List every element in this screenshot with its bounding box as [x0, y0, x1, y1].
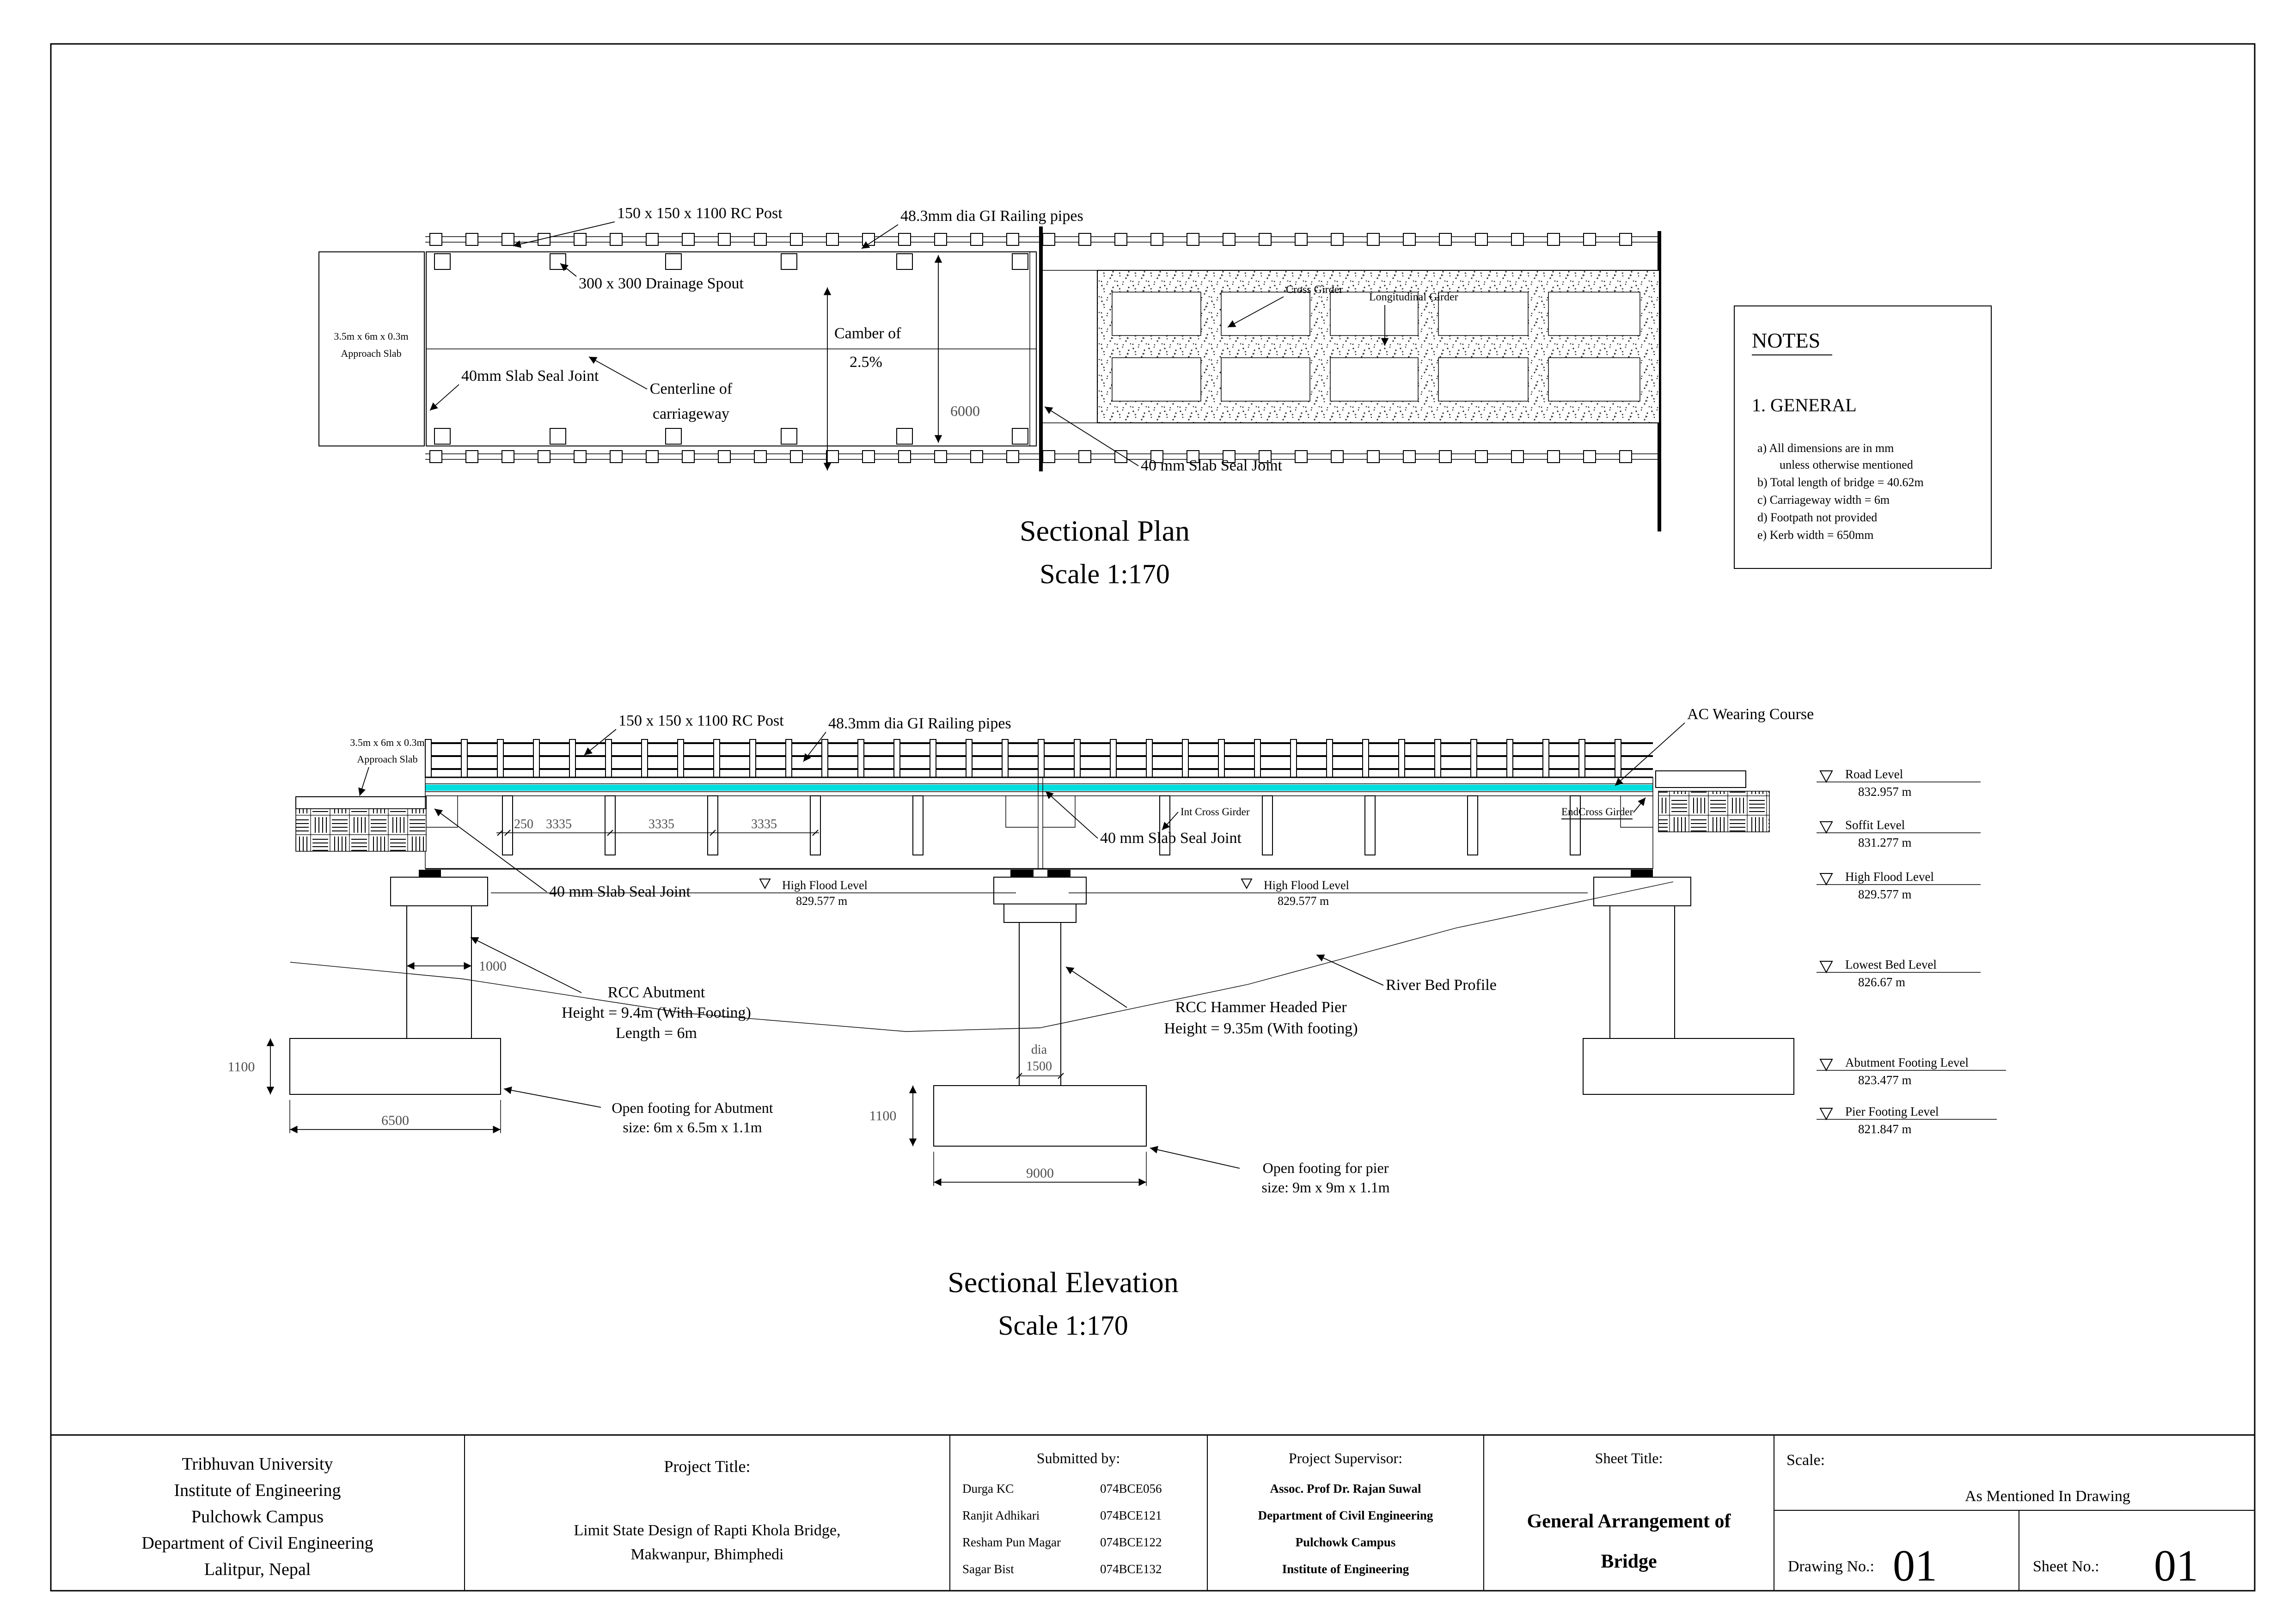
plan-title: Sectional Plan: [1020, 514, 1190, 547]
dim-1100-pier: 1100: [869, 1108, 897, 1123]
note-item: e) Kerb width = 650mm: [1757, 528, 1874, 542]
level-value: 826.67 m: [1858, 975, 1905, 989]
level-label: Road Level: [1845, 767, 1903, 781]
drawing-no-value: 01: [1893, 1541, 1937, 1590]
submitted-name: Sagar Bist: [962, 1562, 1014, 1576]
dim-9000: 9000: [1026, 1166, 1054, 1181]
level-label: High Flood Level: [1845, 870, 1934, 884]
abutment-footing-label-1: Open footing for Abutment: [612, 1099, 773, 1116]
university-line: Institute of Engineering: [174, 1481, 341, 1500]
sheet-title-line: Bridge: [1601, 1551, 1657, 1572]
university-line: Tribhuvan University: [182, 1454, 333, 1474]
supervisor-line: Assoc. Prof Dr. Rajan Suwal: [1270, 1482, 1421, 1496]
plan-approach-label-1: 3.5m x 6m x 0.3m: [334, 330, 408, 342]
bearing: [1631, 870, 1653, 877]
dim-1100-abutment: 1100: [228, 1059, 255, 1075]
dim-dia: dia: [1031, 1043, 1047, 1057]
supervisor-label: Project Supervisor:: [1289, 1450, 1402, 1466]
plan-approach-label-2: Approach Slab: [341, 348, 401, 359]
submitted-roll: 074BCE122: [1100, 1535, 1162, 1549]
dim-1000: 1000: [479, 959, 507, 974]
note-item: b) Total length of bridge = 40.62m: [1757, 476, 1924, 489]
elevation-scale: Scale 1:170: [998, 1310, 1128, 1341]
bearing: [1047, 870, 1071, 877]
drawing-canvas: 3.5m x 6m x 0.3m Approach Slab Cross Gir…: [0, 0, 2294, 1622]
notes-heading: NOTES: [1752, 329, 1820, 352]
plan-longitudinal-girder-label: Longitudinal Girder: [1369, 291, 1458, 303]
dim-1500: 1500: [1026, 1059, 1052, 1074]
level-label: Soffit Level: [1845, 818, 1905, 832]
supervisor-line: Institute of Engineering: [1282, 1562, 1409, 1576]
supervisor-line: Department of Civil Engineering: [1258, 1508, 1433, 1522]
bearing: [419, 870, 441, 877]
pier-label-2: Height = 9.35m (With footing): [1164, 1020, 1358, 1037]
supervisor-line: Pulchowk Campus: [1296, 1535, 1396, 1549]
plan-railing-pipes-label: 48.3mm dia GI Railing pipes: [900, 208, 1083, 225]
note-item: a) All dimensions are in mm: [1757, 441, 1894, 455]
abutment-footing-label-2: size: 6m x 6.5m x 1.1m: [623, 1119, 762, 1136]
level-label: Abutment Footing Level: [1845, 1056, 1969, 1069]
sheet-no-label: Sheet No.:: [2033, 1558, 2099, 1575]
scale-label: Scale:: [1786, 1452, 1825, 1469]
elev-seal-abutment-label: 40 mm Slab Seal Joint: [549, 883, 691, 900]
sheet-title-line: General Arrangement of: [1527, 1511, 1731, 1532]
dim-250: 250: [514, 817, 533, 831]
plan-cross-girder-label: Cross Girder: [1286, 284, 1343, 296]
elev-end-cross-label: EndCross Girder: [1561, 806, 1633, 818]
plan-seal-right-label: 40 mm Slab Seal Joint: [1141, 457, 1283, 474]
level-value: 829.577 m: [1858, 887, 1912, 901]
plan-camber-label-1: Camber of: [834, 325, 901, 342]
elev-int-cross-label: Int Cross Girder: [1181, 806, 1250, 818]
submitted-name: Durga KC: [962, 1482, 1014, 1496]
submitted-name: Ranjit Adhikari: [962, 1508, 1040, 1522]
dim-6500: 6500: [381, 1113, 409, 1128]
sheet-no-value: 01: [2154, 1541, 2198, 1590]
plan-centerline-label-1: Centerline of: [650, 380, 733, 397]
level-value: 832.957 m: [1858, 785, 1912, 799]
university-line: Lalitpur, Nepal: [204, 1560, 311, 1579]
wearing-course-stripe: [425, 785, 1653, 791]
dim-3335: 3335: [648, 817, 674, 831]
hfl-left-value: 829.577 m: [796, 894, 847, 908]
abutment-label-3: Length = 6m: [616, 1025, 697, 1042]
plan-drainage-label: 300 x 300 Drainage Spout: [579, 275, 744, 292]
level-value: 831.277 m: [1858, 836, 1912, 849]
bearing: [1010, 870, 1034, 877]
university-line: Department of Civil Engineering: [141, 1533, 373, 1553]
river-bed-label: River Bed Profile: [1386, 977, 1497, 994]
elev-railing-pipes-label: 48.3mm dia GI Railing pipes: [828, 715, 1011, 732]
plan-camber-label-2: 2.5%: [850, 354, 882, 371]
drawing-no-label: Drawing No.:: [1788, 1558, 1874, 1575]
pier-footing-label-1: Open footing for pier: [1263, 1160, 1389, 1176]
plan-girder-grid: [1043, 270, 1659, 423]
pier-footing-label-2: size: 9m x 9m x 1.1m: [1261, 1179, 1389, 1196]
hfl-right-label: High Flood Level: [1264, 879, 1349, 892]
plan-rc-post-label: 150 x 150 x 1100 RC Post: [617, 205, 783, 222]
level-value: 823.477 m: [1858, 1073, 1912, 1087]
submitted-roll: 074BCE132: [1100, 1562, 1162, 1576]
level-value: 821.847 m: [1858, 1122, 1912, 1136]
scale-value: As Mentioned In Drawing: [1965, 1488, 2130, 1505]
note-item: d) Footpath not provided: [1757, 511, 1877, 524]
drawing-sheet: 3.5m x 6m x 0.3m Approach Slab Cross Gir…: [0, 0, 2294, 1622]
note-item: unless otherwise mentioned: [1780, 458, 1913, 471]
plan-width-dim-text: 6000: [950, 403, 980, 419]
dim-3335: 3335: [546, 817, 572, 831]
hfl-right-value: 829.577 m: [1278, 894, 1329, 908]
submitted-roll: 074BCE056: [1100, 1482, 1162, 1496]
dim-3335: 3335: [751, 817, 777, 831]
project-title-line: Limit State Design of Rapti Khola Bridge…: [574, 1522, 841, 1539]
elev-seal-pier-label: 40 mm Slab Seal Joint: [1100, 830, 1242, 847]
project-title-line: Makwanpur, Bhimphedi: [630, 1546, 783, 1563]
hfl-left-label: High Flood Level: [782, 879, 868, 892]
pier-label-1: RCC Hammer Headed Pier: [1175, 999, 1347, 1016]
university-line: Pulchowk Campus: [191, 1507, 324, 1526]
plan-scale: Scale 1:170: [1040, 559, 1170, 589]
elev-ac-wearing-label: AC Wearing Course: [1687, 706, 1814, 723]
plan-centerline-label-2: carriageway: [653, 405, 729, 422]
elev-approach-label-1: 3.5m x 6m x 0.3m: [350, 737, 424, 748]
abutment-label-2: Height = 9.4m (With Footing): [562, 1004, 751, 1021]
submitted-roll: 074BCE121: [1100, 1508, 1162, 1522]
notes-section: 1. GENERAL: [1752, 395, 1857, 415]
abutment-label-1: RCC Abutment: [608, 984, 705, 1001]
submitted-name: Resham Pun Magar: [962, 1535, 1061, 1549]
project-title-label: Project Title:: [664, 1457, 750, 1476]
elev-approach-label-2: Approach Slab: [357, 753, 417, 765]
sheet-title-label: Sheet Title:: [1595, 1450, 1663, 1466]
level-label: Lowest Bed Level: [1845, 958, 1937, 971]
elev-rc-post-label: 150 x 150 x 1100 RC Post: [618, 712, 784, 729]
level-label: Pier Footing Level: [1845, 1105, 1939, 1118]
note-item: c) Carriageway width = 6m: [1757, 493, 1890, 507]
elevation-title: Sectional Elevation: [948, 1266, 1178, 1299]
plan-seal-left-label: 40mm Slab Seal Joint: [461, 367, 599, 385]
submitted-label: Submitted by:: [1037, 1450, 1120, 1466]
